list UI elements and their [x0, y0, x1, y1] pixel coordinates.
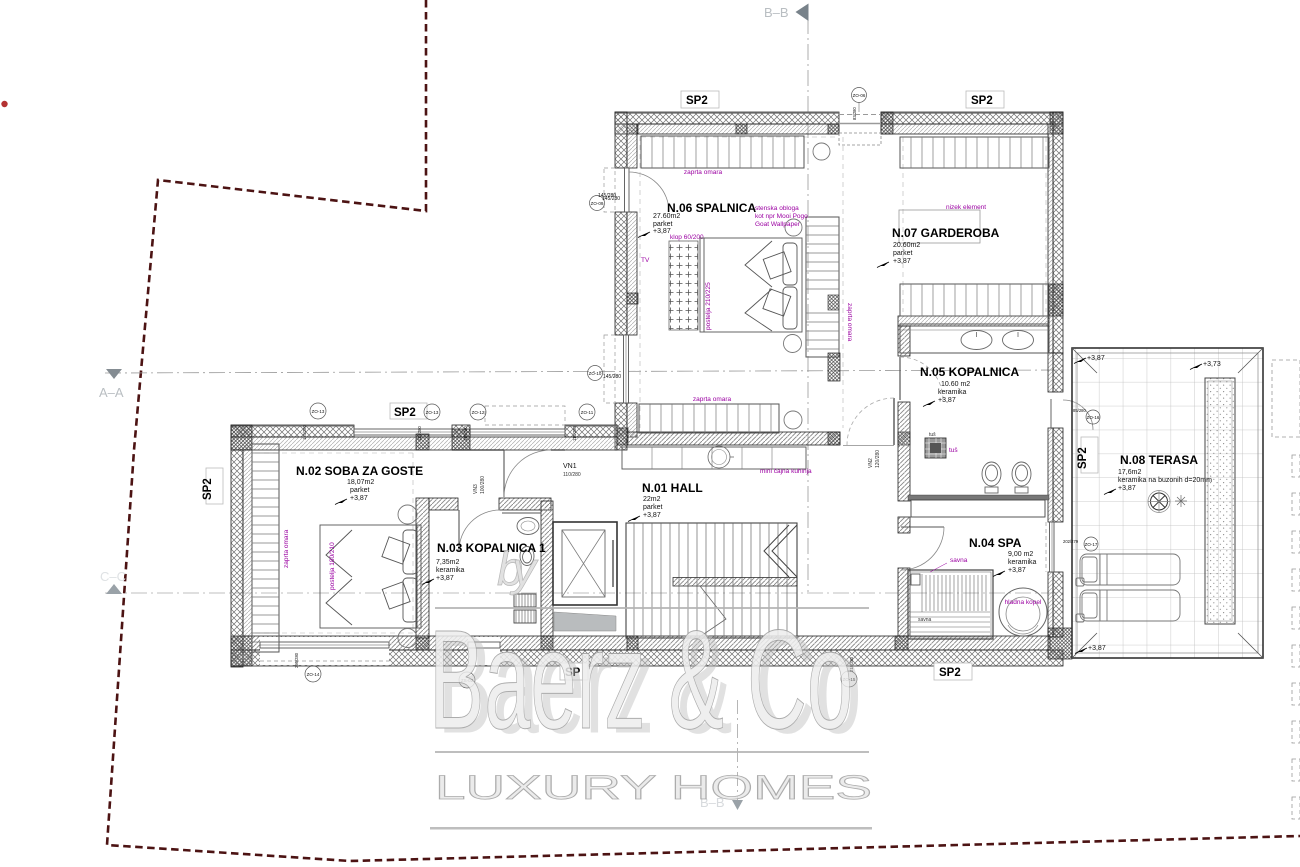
svg-text:klop 60/200: klop 60/200: [670, 234, 704, 241]
svg-text:VN2: VN2: [868, 458, 874, 468]
svg-text:keramika: keramika: [436, 567, 465, 574]
svg-text:parket: parket: [643, 504, 663, 511]
svg-text:tuš: tuš: [929, 432, 936, 438]
svg-text:parket: parket: [653, 221, 673, 228]
svg-text:17,6m2: 17,6m2: [1118, 469, 1141, 476]
svg-text:100/280: 100/280: [480, 476, 486, 494]
svg-text:LUXURY HOMES: LUXURY HOMES: [435, 769, 872, 807]
svg-text:N.05 KOPALNICA: N.05 KOPALNICA: [920, 365, 1019, 379]
svg-text:+3,87: +3,87: [1088, 645, 1106, 652]
svg-text:B–B: B–B: [764, 5, 789, 20]
svg-text:N.08 TERASA: N.08 TERASA: [1120, 453, 1198, 467]
svg-text:115/280: 115/280: [572, 426, 577, 441]
svg-text:tuš: tuš: [949, 447, 958, 454]
svg-text:stenska obloga: stenska obloga: [755, 205, 799, 212]
svg-text:zaprta omara: zaprta omara: [684, 169, 723, 176]
svg-text:N.07 GARDEROBA: N.07 GARDEROBA: [892, 226, 1000, 240]
svg-text:mini čajna kuhinja: mini čajna kuhinja: [760, 468, 812, 475]
svg-text:SP2: SP2: [202, 478, 214, 500]
svg-text:ZO-13: ZO-13: [312, 409, 325, 414]
svg-text:+3,73: +3,73: [1203, 361, 1221, 368]
svg-text:kot npr Mooi Pogo: kot npr Mooi Pogo: [755, 213, 808, 220]
svg-text:115/280: 115/280: [463, 426, 468, 441]
svg-text:TV: TV: [641, 257, 650, 264]
svg-text:+3,87: +3,87: [1008, 567, 1026, 574]
svg-text:SP2: SP2: [1077, 447, 1089, 469]
svg-text:+3,87: +3,87: [436, 575, 454, 582]
svg-text:zaprta omara: zaprta omara: [693, 396, 732, 403]
svg-text:hladna kopel: hladna kopel: [1005, 599, 1042, 606]
svg-text:+3,87: +3,87: [1087, 355, 1105, 362]
svg-text:ZO-10: ZO-10: [589, 371, 602, 376]
svg-text:22m2: 22m2: [643, 496, 661, 503]
svg-text:SP2: SP2: [971, 95, 993, 107]
svg-text:ZO-06: ZO-06: [853, 93, 866, 98]
svg-text:115/280: 115/280: [417, 426, 422, 441]
svg-text:ZO-11: ZO-11: [581, 410, 594, 415]
svg-text:27.60m2: 27.60m2: [653, 213, 680, 220]
svg-text:+3,87: +3,87: [653, 228, 671, 235]
svg-text:savna: savna: [950, 557, 968, 564]
svg-text:ZO-12: ZO-12: [472, 410, 485, 415]
svg-text:10.60 m2: 10.60 m2: [941, 381, 970, 388]
svg-text:postelja 210/225: postelja 210/225: [705, 282, 712, 330]
svg-text:Goat Wallpaper: Goat Wallpaper: [755, 221, 801, 228]
svg-text:202/279: 202/279: [1063, 539, 1079, 544]
svg-text:keramika na buzonih d=20mm: keramika na buzonih d=20mm: [1118, 477, 1212, 484]
svg-text:20.60m2: 20.60m2: [893, 242, 920, 249]
svg-text:zaprta omara: zaprta omara: [846, 303, 853, 342]
svg-text:ZO-16: ZO-16: [1087, 415, 1100, 420]
svg-text:keramika: keramika: [938, 389, 967, 396]
svg-text:+3,87: +3,87: [938, 397, 956, 404]
svg-text:VN1: VN1: [563, 463, 577, 470]
svg-text:VN3: VN3: [473, 484, 479, 494]
svg-text:postelja 180/210: postelja 180/210: [329, 542, 336, 590]
svg-text:+3,87: +3,87: [350, 495, 368, 502]
svg-text:nizek element: nizek element: [946, 204, 986, 211]
svg-text:parket: parket: [893, 250, 913, 257]
svg-text:zaprta omara: zaprta omara: [283, 529, 290, 568]
svg-text:SP2: SP2: [394, 407, 416, 419]
svg-text:N.06 SPALNICA: N.06 SPALNICA: [667, 201, 756, 215]
svg-text:by: by: [497, 542, 539, 595]
svg-text:85/280: 85/280: [1073, 408, 1086, 413]
svg-text:keramika: keramika: [1008, 559, 1037, 566]
svg-text:115/280: 115/280: [302, 425, 307, 440]
svg-text:ZO-13: ZO-13: [426, 410, 439, 415]
svg-text:N.02 SOBA ZA GOSTE: N.02 SOBA ZA GOSTE: [296, 464, 423, 478]
svg-text:110/280: 110/280: [563, 472, 581, 478]
svg-text:+3,87: +3,87: [643, 512, 661, 519]
svg-text:9,00 m2: 9,00 m2: [1008, 551, 1033, 558]
svg-text:SP2: SP2: [939, 667, 961, 679]
svg-text:SP2: SP2: [686, 95, 708, 107]
svg-text:83/280: 83/280: [852, 107, 857, 120]
svg-text:295/280: 295/280: [294, 652, 299, 668]
svg-text:N.01 HALL: N.01 HALL: [642, 481, 703, 495]
svg-text:+3,87: +3,87: [893, 258, 911, 265]
svg-text:120/280: 120/280: [875, 450, 881, 468]
svg-text:parket: parket: [350, 487, 370, 494]
svg-text:ZO-17: ZO-17: [1085, 542, 1098, 547]
svg-text:145/280: 145/280: [598, 193, 616, 199]
svg-text:ZO-14: ZO-14: [307, 672, 320, 677]
svg-text:7,35m2: 7,35m2: [436, 559, 459, 566]
svg-text:N.04 SPA: N.04 SPA: [969, 536, 1022, 550]
svg-text:C–C: C–C: [100, 569, 126, 584]
svg-text:savna: savna: [918, 617, 932, 623]
svg-text:145/280: 145/280: [603, 374, 621, 380]
svg-text:Baerz & Co: Baerz & Co: [429, 600, 853, 758]
svg-text:A–A: A–A: [99, 385, 124, 400]
svg-text:18,07m2: 18,07m2: [347, 479, 374, 486]
svg-text:+3,87: +3,87: [1118, 485, 1136, 492]
